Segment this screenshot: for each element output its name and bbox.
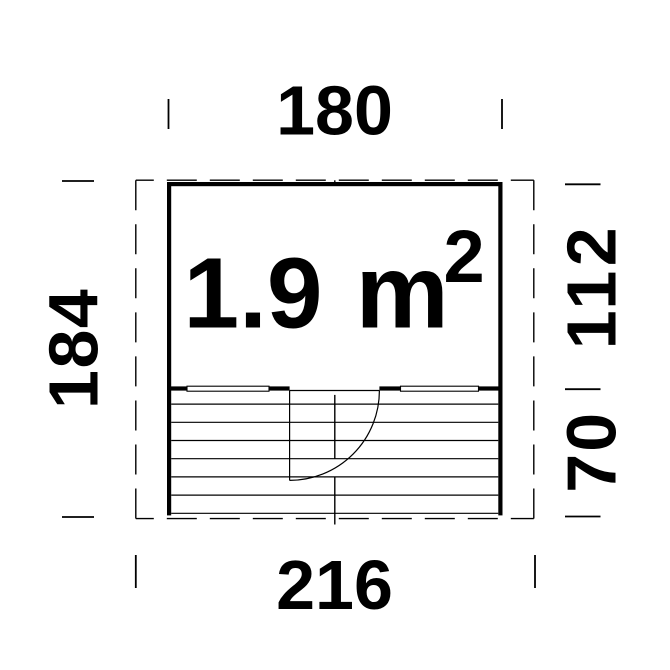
svg-text:112: 112 — [553, 223, 631, 349]
svg-text:m: m — [356, 234, 449, 351]
svg-text:180: 180 — [276, 72, 393, 150]
svg-text:216: 216 — [276, 546, 393, 624]
svg-text:70: 70 — [553, 411, 631, 493]
svg-text:1.9: 1.9 — [184, 238, 323, 350]
svg-text:184: 184 — [35, 288, 113, 409]
svg-text:2: 2 — [444, 215, 485, 298]
